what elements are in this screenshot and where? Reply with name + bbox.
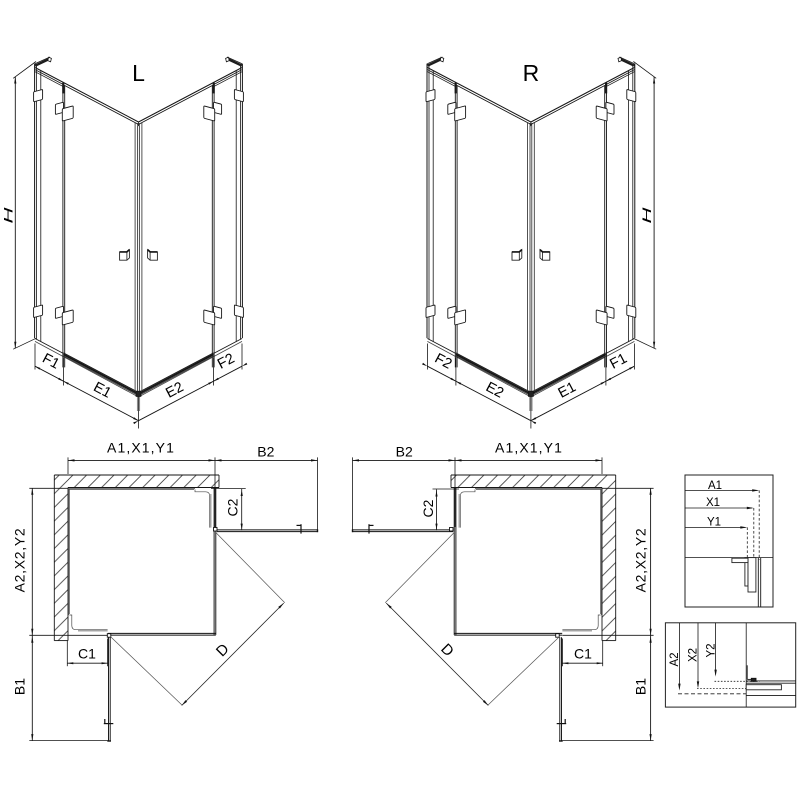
svg-text:Y1: Y1 [707, 517, 721, 529]
svg-text:B1: B1 [12, 678, 28, 695]
svg-text:H: H [640, 207, 654, 223]
svg-text:L: L [132, 60, 145, 86]
svg-text:A1,X1,Y1: A1,X1,Y1 [107, 440, 175, 456]
svg-text:A1: A1 [708, 480, 722, 492]
svg-text:B1: B1 [633, 678, 649, 695]
svg-text:A1,X1,Y1: A1,X1,Y1 [495, 440, 563, 456]
svg-text:A2,X2,Y2: A2,X2,Y2 [12, 528, 28, 593]
svg-text:B2: B2 [257, 444, 274, 460]
svg-text:C2: C2 [225, 498, 241, 516]
svg-text:A2,X2,Y2: A2,X2,Y2 [633, 528, 649, 593]
svg-text:B2: B2 [396, 444, 413, 460]
svg-text:X1: X1 [706, 497, 720, 509]
svg-text:R: R [523, 60, 540, 86]
svg-text:C2: C2 [420, 499, 436, 517]
svg-text:X2: X2 [688, 648, 700, 662]
svg-text:C1: C1 [574, 646, 592, 662]
svg-text:H: H [2, 207, 16, 223]
svg-text:A2: A2 [669, 652, 681, 666]
svg-text:C1: C1 [78, 646, 96, 662]
svg-text:Y2: Y2 [705, 643, 717, 657]
